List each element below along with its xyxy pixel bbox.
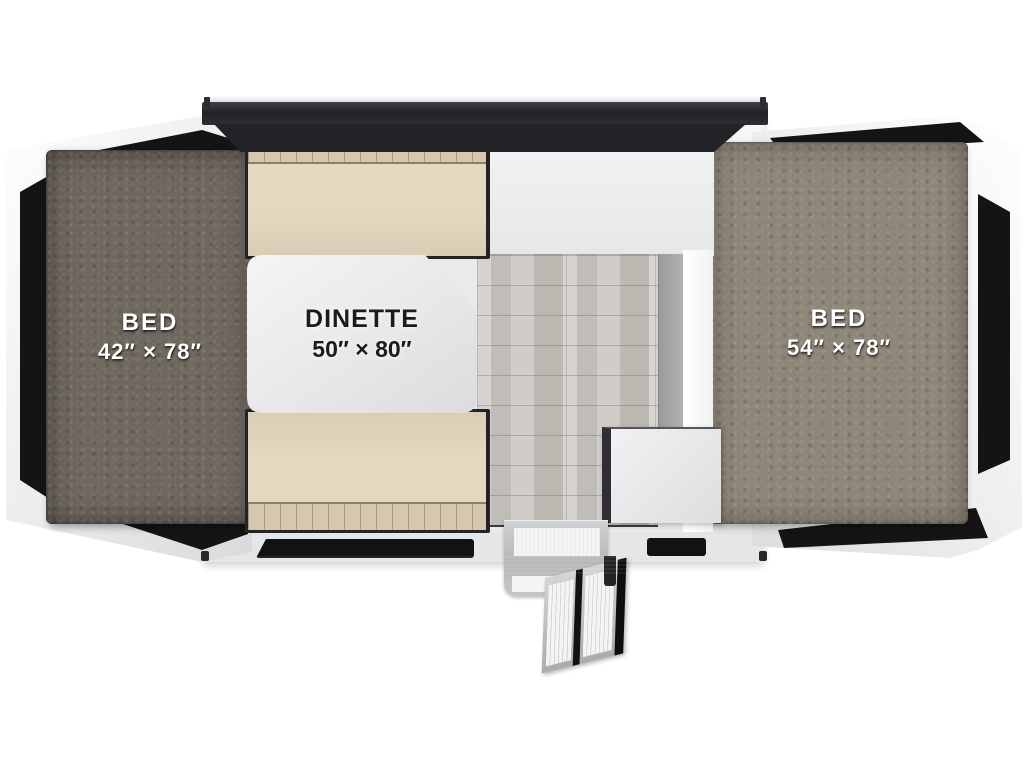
left-bed-mattress: BED 42″ × 78″	[46, 150, 254, 524]
galley-counter	[483, 148, 714, 256]
front-wall-band	[214, 124, 746, 152]
floorplan-canvas: BED 42″ × 78″ BED 54″ × 78″ DINETTE	[0, 0, 1024, 768]
dinette-bench-bottom	[248, 412, 486, 530]
right-bed-assembly: BED 54″ × 78″	[700, 102, 1024, 574]
dinette-label: DINETTE 50″ × 80″	[305, 304, 419, 364]
counter-edge-strip	[658, 254, 684, 430]
bumper-rail	[203, 556, 765, 574]
bed-left-label: BED 42″ × 78″	[98, 307, 202, 367]
underbody-trim-right	[647, 538, 706, 556]
bed-right-label: BED 54″ × 78″	[787, 303, 891, 363]
right-bed-mattress: BED 54″ × 78″	[710, 142, 968, 524]
roof-rail	[202, 102, 768, 125]
dinette-table: DINETTE 50″ × 80″	[247, 255, 477, 413]
step-rail-inner	[573, 569, 583, 666]
storage-cabinet	[602, 427, 721, 523]
step-perforations-upper	[514, 528, 600, 556]
dinette-seatback-bottom	[248, 502, 486, 530]
flap-perforations-a	[546, 579, 574, 666]
left-bed-assembly: BED 42″ × 78″	[4, 106, 254, 570]
dinette-bench-top	[248, 136, 486, 256]
